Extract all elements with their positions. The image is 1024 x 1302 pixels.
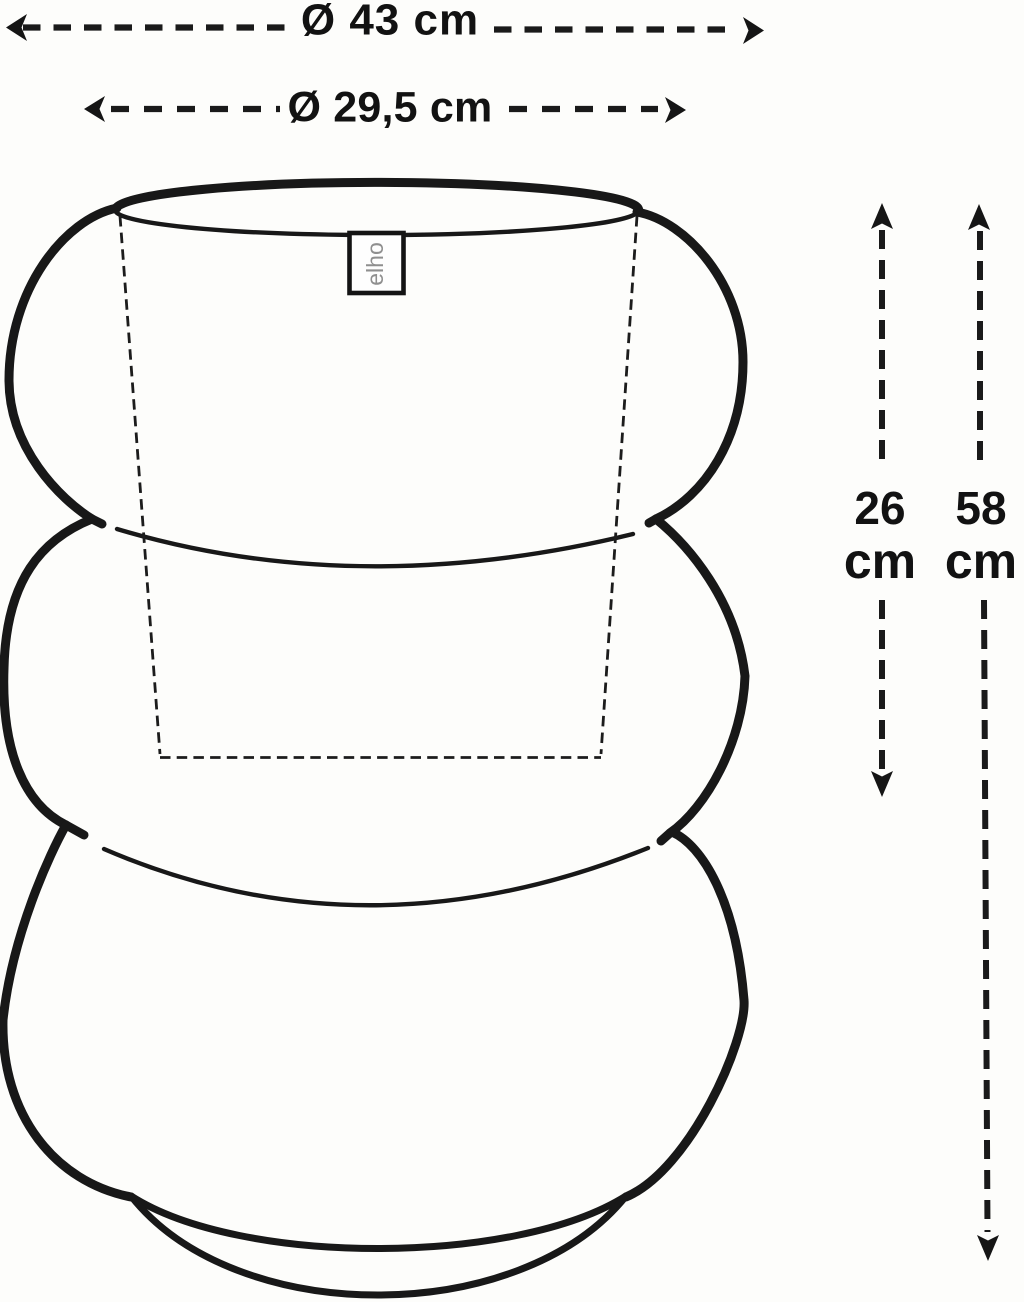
svg-text:cm: cm (945, 533, 1017, 589)
svg-text:elho: elho (362, 242, 388, 285)
svg-text:Ø 43 cm: Ø 43 cm (301, 0, 479, 45)
svg-text:cm: cm (844, 533, 916, 589)
svg-text:26: 26 (854, 482, 905, 534)
svg-text:Ø 29,5 cm: Ø 29,5 cm (288, 84, 493, 132)
svg-text:58: 58 (955, 482, 1006, 534)
